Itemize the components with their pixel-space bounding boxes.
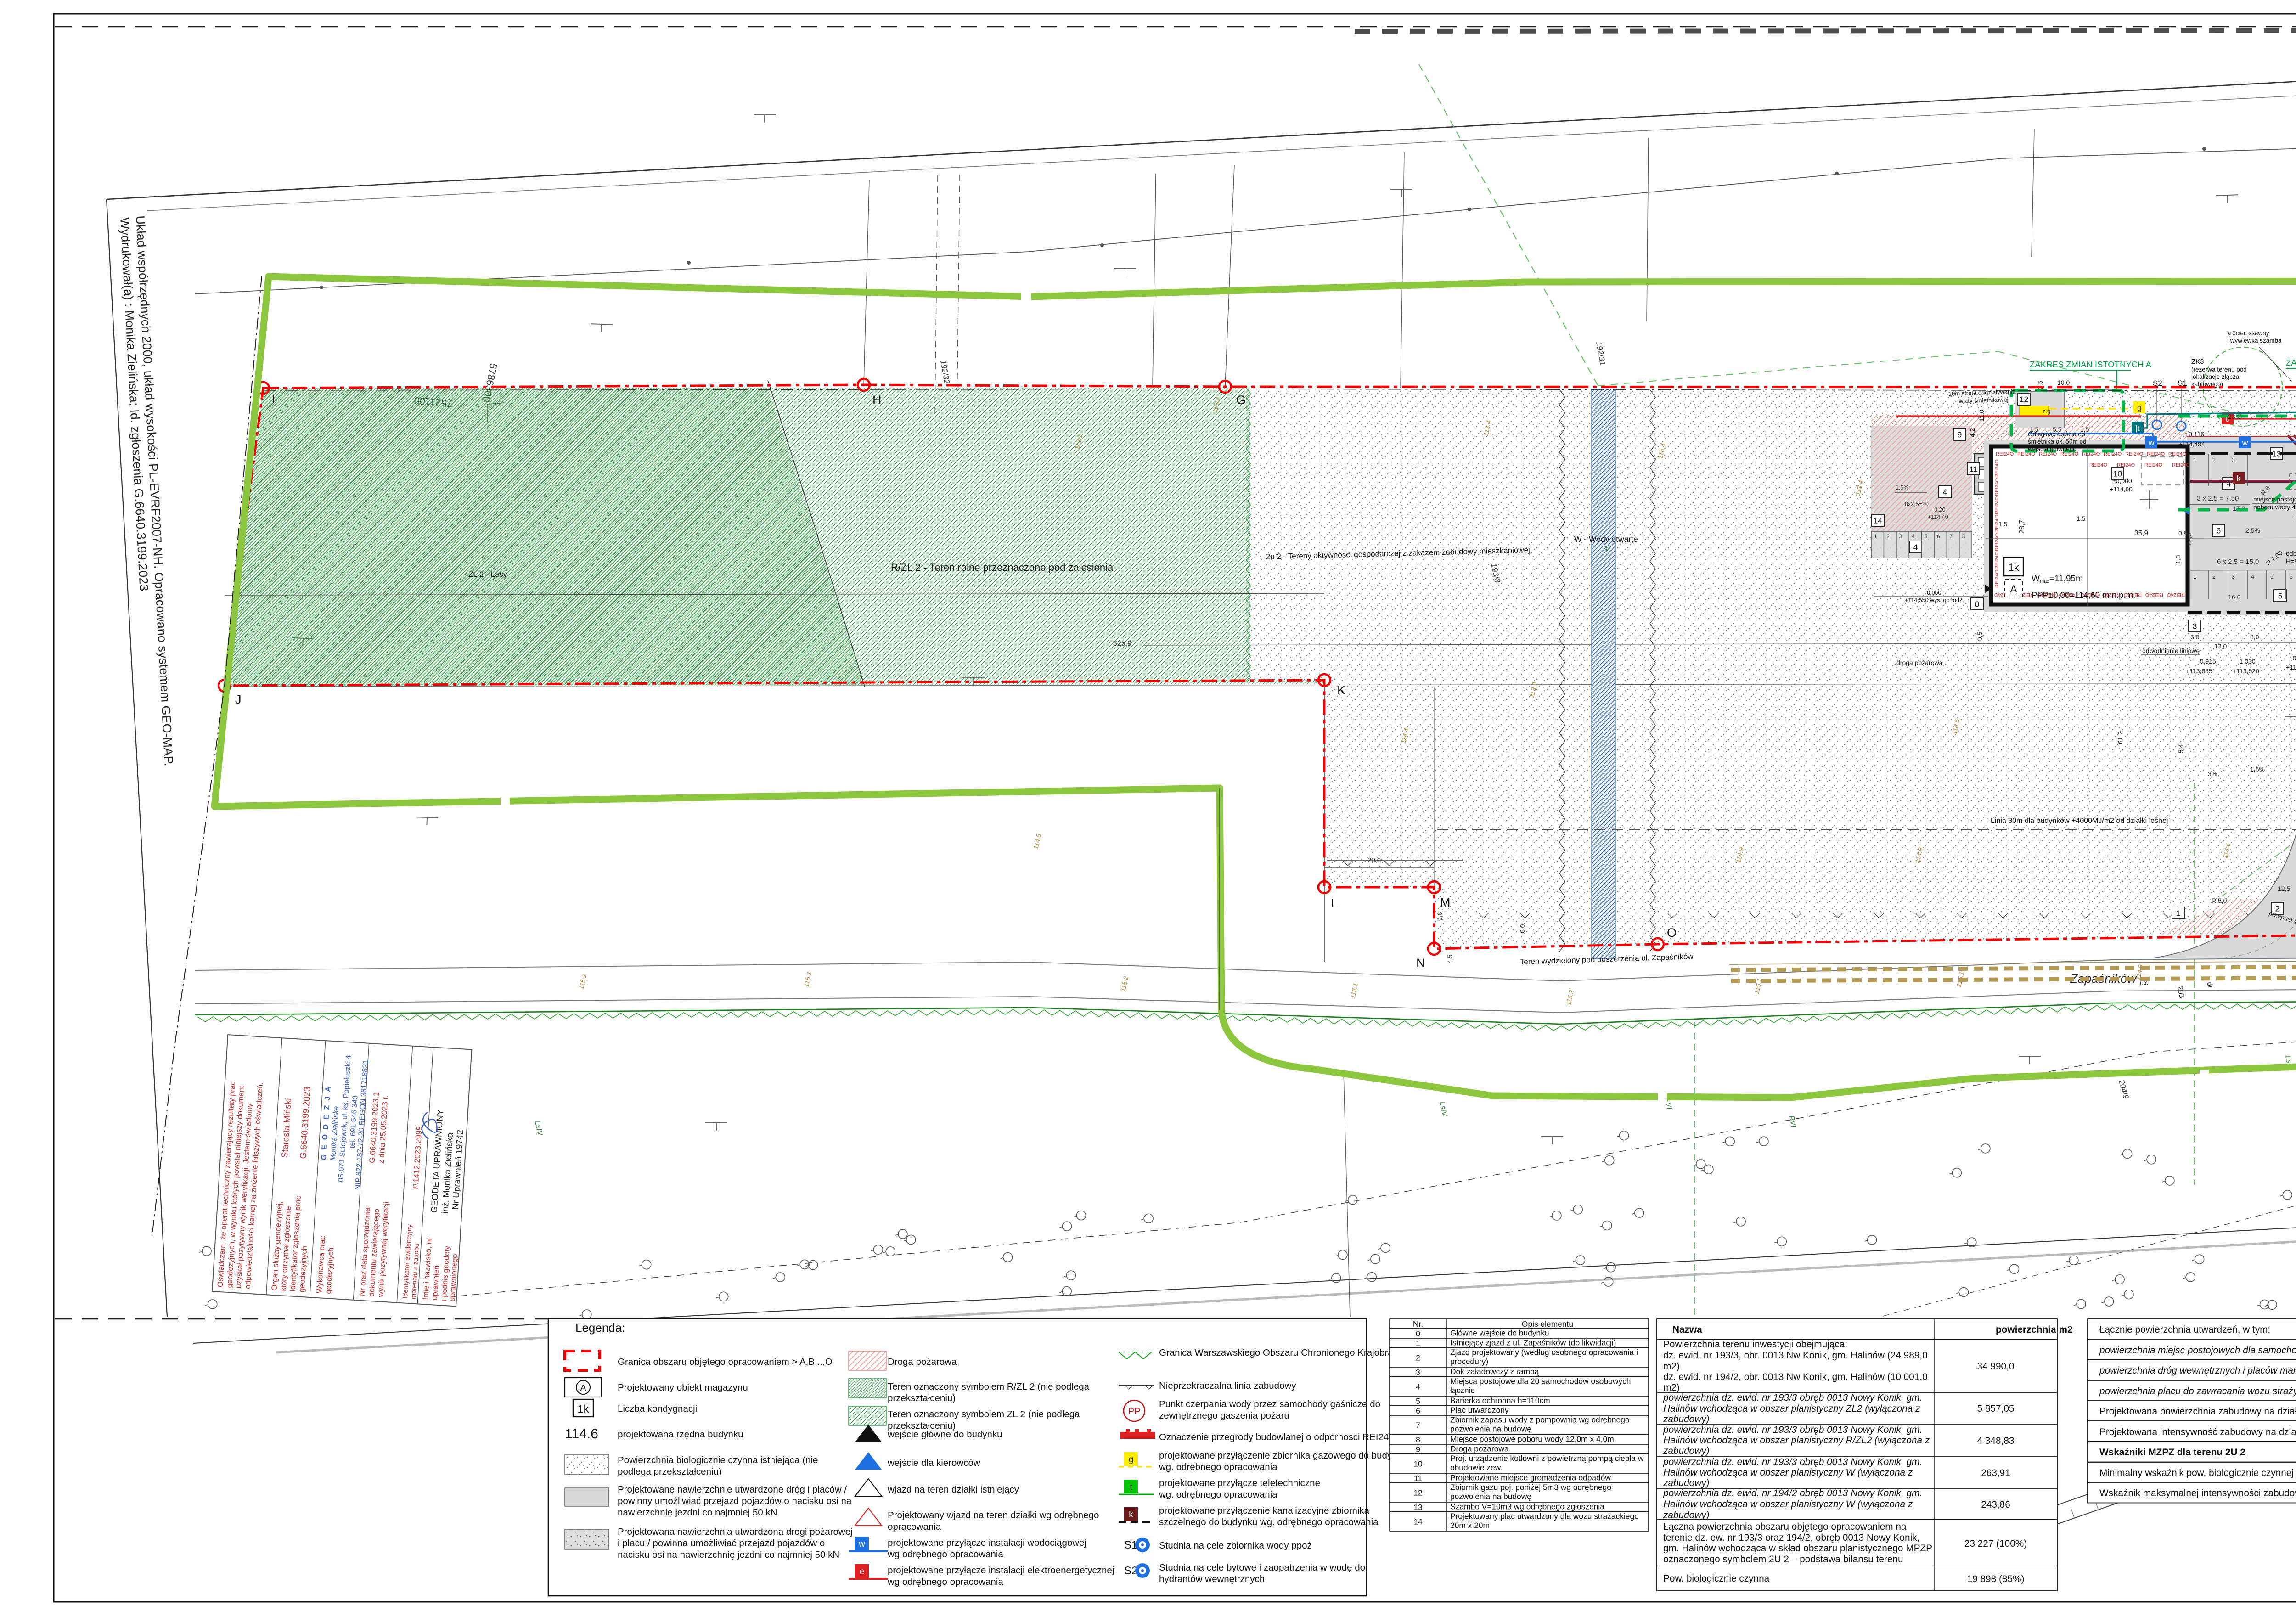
svg-text:+114,550 wys. gr. rodz.: +114,550 wys. gr. rodz. [1905, 597, 1964, 603]
svg-text:28,7: 28,7 [2018, 520, 2026, 534]
svg-text:powierzchnia placu do zawracan: powierzchnia placu do zawracania wozu st… [2099, 1386, 2296, 1397]
svg-text:zewnętrznego gaszenia pożaru: zewnętrznego gaszenia pożaru [1159, 1410, 1289, 1421]
svg-text:8: 8 [1416, 1435, 1420, 1444]
svg-text:obudowie zew.: obudowie zew. [1450, 1463, 1503, 1472]
svg-text:terenie dz. ew. nr 193/3 oraz: terenie dz. ew. nr 193/3 oraz 194/2, obr… [1663, 1532, 1919, 1543]
svg-text:Dok załadowczy z rampą: Dok załadowczy z rampą [1450, 1367, 1539, 1376]
svg-text:odbojnica liniowa: odbojnica liniowa [2286, 550, 2296, 557]
svg-text:wejście dla kierowców: wejście dla kierowców [887, 1458, 980, 1468]
svg-text:Legenda:: Legenda: [575, 1321, 625, 1335]
svg-text:1,3: 1,3 [2174, 555, 2182, 564]
svg-text:6,0: 6,0 [2190, 633, 2200, 641]
svg-text:Studnia na cele bytowe i zaopa: Studnia na cele bytowe i zaopatrzenia w … [1159, 1562, 1365, 1573]
svg-text:2: 2 [2212, 457, 2216, 463]
svg-text:m2): m2) [1663, 1382, 1680, 1393]
svg-text:+113,640: +113,640 [2286, 664, 2296, 671]
svg-text:w: w [858, 1539, 865, 1549]
svg-text:1,5: 1,5 [2030, 426, 2039, 433]
svg-text:Nazwa: Nazwa [1672, 1324, 1702, 1335]
svg-text:1: 1 [1416, 1339, 1420, 1348]
svg-text:20,0: 20,0 [1367, 856, 1381, 864]
svg-text:powierzchnia miejsc postojowyc: powierzchnia miejsc postojowych dla samo… [2099, 1345, 2296, 1356]
svg-text:Powierzchnia biologicznie czyn: Powierzchnia biologicznie czynna istniej… [618, 1455, 818, 1465]
svg-text:1: 1 [2193, 574, 2196, 580]
svg-text:ZK3: ZK3 [2191, 358, 2204, 366]
svg-text:Teren oznaczony symbolem R/ZL: Teren oznaczony symbolem R/ZL 2 (nie pod… [888, 1381, 1090, 1392]
svg-text:Szambo V=10m3 wg odrębnego zgł: Szambo V=10m3 wg odrębnego zgłoszenia [1450, 1502, 1604, 1511]
svg-text:w: w [2242, 438, 2249, 447]
svg-text:REI24O: REI24O [1994, 459, 2000, 478]
svg-text:ZAKRES ZMIAN ISTOTNYCH A: ZAKRES ZMIAN ISTOTNYCH A [2030, 360, 2152, 369]
svg-text:+114,60: +114,60 [2110, 485, 2133, 493]
svg-text:5: 5 [1416, 1397, 1420, 1406]
svg-text:14: 14 [1413, 1517, 1423, 1527]
svg-text:REI24O: REI24O [1994, 569, 2000, 588]
svg-text:7: 7 [1949, 533, 1953, 540]
svg-text:J: J [235, 693, 242, 706]
svg-text:Droga pożarowa: Droga pożarowa [888, 1357, 957, 1367]
svg-text:9: 9 [1416, 1445, 1420, 1454]
svg-text:droga pożarowa: droga pożarowa [1896, 659, 1943, 666]
svg-text:0: 0 [1416, 1329, 1420, 1338]
svg-text:miejsce postojowe: miejsce postojowe [2253, 496, 2296, 503]
svg-text:Barierka ochronna h=110cm: Barierka ochronna h=110cm [1450, 1396, 1550, 1405]
svg-text:7: 7 [1416, 1421, 1420, 1430]
svg-text:Oznaczenie przegrody budowlane: Oznaczenie przegrody budowlanej o odporn… [1159, 1432, 1394, 1442]
svg-text:6,0: 6,0 [1519, 924, 1526, 933]
svg-text:Miejsce postojowe poboru wody: Miejsce postojowe poboru wody 12,0m x 4,… [1450, 1435, 1614, 1444]
svg-text:A: A [2010, 583, 2017, 595]
svg-text:wg odrębnego opracowania: wg odrębnego opracowania [887, 1549, 1003, 1560]
svg-text:zabudowy): zabudowy) [1663, 1478, 1710, 1488]
svg-text:Teren oznaczony symbolem ZL 2: Teren oznaczony symbolem ZL 2 (nie podle… [888, 1409, 1080, 1419]
svg-text:projektowane przyłącze instala: projektowane przyłącze instalacji wodoci… [888, 1538, 1086, 1548]
svg-text:-0,050: -0,050 [1925, 590, 1941, 596]
svg-text:powierzchnia dz. ewid. nr 193/: powierzchnia dz. ewid. nr 193/3 obręb 00… [1663, 1392, 1922, 1403]
svg-text:11: 11 [1969, 464, 1977, 473]
svg-text:ZL 2 - Lasy: ZL 2 - Lasy [468, 570, 507, 579]
svg-text:16,0: 16,0 [2228, 593, 2240, 601]
svg-text:4: 4 [1912, 533, 1915, 540]
svg-text:+114,40: +114,40 [1928, 514, 1948, 520]
svg-text:Projektowane nawierzchnie utwa: Projektowane nawierzchnie utwardzone dró… [618, 1484, 847, 1495]
svg-text:Nieprzekraczalna linia zabudow: Nieprzekraczalna linia zabudowy [1159, 1380, 1296, 1391]
svg-text:Wskaźnik maksymalnej intensywn: Wskaźnik maksymalnej intensywności zabud… [2099, 1488, 2296, 1498]
svg-text:Pow. biologicznie czynna: Pow. biologicznie czynna [1663, 1573, 1770, 1584]
svg-text:1,5%: 1,5% [2250, 766, 2265, 773]
svg-text:O: O [1667, 926, 1677, 940]
svg-text:5: 5 [2270, 574, 2273, 580]
svg-text:Projektowany plac utwardzony d: Projektowany plac utwardzony dla wozu st… [1450, 1512, 1639, 1521]
svg-text:nacisku osi na nawierzchnię je: nacisku osi na nawierzchnię jezdni co na… [618, 1549, 839, 1560]
svg-text:k: k [1129, 1510, 1133, 1520]
svg-text:L: L [1331, 896, 1338, 910]
svg-text:5 857,05: 5 857,05 [1977, 1403, 2015, 1414]
svg-text:8x2,5=20: 8x2,5=20 [1905, 501, 1929, 507]
svg-text:1: 1 [1874, 533, 1877, 540]
svg-text:9,6: 9,6 [1436, 912, 1443, 921]
svg-text:oznaczonego symbolem 2U 2 – po: oznaczonego symbolem 2U 2 – podstawa bil… [1663, 1554, 1903, 1565]
svg-text:projektowane przyłącze teletec: projektowane przyłącze teletechniczne [1159, 1478, 1320, 1488]
svg-text:Linia 30m dla budynków +4000MJ: Linia 30m dla budynków +4000MJ/m2 od dzi… [1991, 817, 2168, 825]
svg-text:Minimalny wskaźnik pow. biolog: Minimalny wskaźnik pow. biologicznie czy… [2099, 1468, 2294, 1478]
svg-text:wjazd na teren działki istniej: wjazd na teren działki istniejący [887, 1484, 1019, 1495]
svg-text:Zbiornik gazu poj. poniżej 5m3: Zbiornik gazu poj. poniżej 5m3 wg odrębn… [1450, 1483, 1611, 1492]
svg-text:nawierzchnię jezdni co najmnie: nawierzchnię jezdni co najmniej 50 kN [618, 1507, 777, 1518]
svg-text:13: 13 [1413, 1503, 1422, 1512]
svg-text:W - Wody otwarte: W - Wody otwarte [1574, 535, 1638, 544]
svg-text:REI24O: REI24O [2167, 592, 2185, 597]
svg-text:g: g [2137, 403, 2142, 412]
svg-text:8: 8 [1962, 533, 1965, 540]
svg-text:114.6: 114.6 [565, 1426, 598, 1442]
svg-text:-0,20: -0,20 [1932, 507, 1946, 513]
svg-text:1: 1 [2193, 457, 2196, 463]
svg-text:19 898 (85%): 19 898 (85%) [1967, 1574, 2025, 1584]
svg-text:12: 12 [1413, 1488, 1422, 1498]
svg-text:Punkt czerpania wody przez sam: Punkt czerpania wody przez samochody gaś… [1159, 1399, 1380, 1409]
svg-text:REI24O: REI24O [1994, 478, 2000, 496]
svg-text:REI24O: REI24O [2125, 451, 2144, 457]
svg-text:H: H [872, 393, 882, 407]
svg-text:I: I [272, 392, 276, 406]
svg-text:powierzchnia dróg wewnętrznych: powierzchnia dróg wewnętrznych i placów … [2099, 1365, 2296, 1376]
svg-text:wejście główne do budynku: wejście główne do budynku [887, 1429, 1002, 1440]
svg-text:wg odrębnego opracowania: wg odrębnego opracowania [887, 1577, 1003, 1587]
svg-text:szczelnego do budynku wg. odrę: szczelnego do budynku wg. odrębnego opra… [1159, 1517, 1379, 1527]
svg-text:REI24O: REI24O [2145, 592, 2163, 597]
svg-text:g: g [1129, 1455, 1134, 1465]
svg-text:243,86: 243,86 [1981, 1499, 2010, 1510]
svg-text:12: 12 [2020, 394, 2028, 404]
svg-text:projektowane przyłączenie kana: projektowane przyłączenie kanalizacyjne … [1159, 1505, 1370, 1516]
svg-text:Wskaźniki MZPZ dla terenu 2U 2: Wskaźniki MZPZ dla terenu 2U 2 [2099, 1447, 2245, 1458]
svg-text:20m x 20m: 20m x 20m [1450, 1521, 1490, 1530]
svg-text:R/ZL 2 - Teren rolne przeznacz: R/ZL 2 - Teren rolne przeznaczone pod za… [891, 562, 1114, 573]
svg-text:N: N [1416, 956, 1425, 970]
svg-text:-0,960: -0,960 [2290, 654, 2296, 662]
svg-text:-0,915: -0,915 [2198, 658, 2216, 665]
svg-text:w: w [2148, 438, 2155, 447]
svg-text:projektowane przyłączenie zbio: projektowane przyłączenie zbiornika gazo… [1159, 1450, 1407, 1461]
svg-text:4: 4 [1943, 487, 1947, 496]
svg-text:REI24O: REI24O [2147, 451, 2165, 457]
svg-text:0,5: 0,5 [1976, 631, 1983, 641]
svg-text:REI24O: REI24O [2089, 462, 2108, 468]
svg-text:(rezerwa terenu pod: (rezerwa terenu pod [2191, 366, 2247, 373]
svg-text:R 5,0: R 5,0 [2212, 897, 2227, 904]
svg-text:odwodnienie liniowe: odwodnienie liniowe [2142, 647, 2200, 654]
svg-text:Halinów wchodząca w obszar pla: Halinów wchodząca w obszar planistyczny … [1663, 1403, 1920, 1414]
svg-text:zabudowy): zabudowy) [1663, 1510, 1710, 1521]
svg-text:K: K [1337, 683, 1345, 697]
svg-text:4: 4 [2251, 574, 2254, 580]
svg-text:dz. ewid. nr 193/3, obr. 0013: dz. ewid. nr 193/3, obr. 0013 Nw Konik, … [1663, 1350, 1928, 1361]
svg-text:325,9: 325,9 [1113, 640, 1131, 648]
svg-text:powierzchnia dz. ewid. nr 193/: powierzchnia dz. ewid. nr 193/3 obręb 00… [1663, 1425, 1922, 1435]
svg-text:1k: 1k [2008, 562, 2019, 573]
svg-text:Proj. urządzenie kotłowni z po: Proj. urządzenie kotłowni z powietrzną p… [1450, 1454, 1644, 1463]
svg-text:1k: 1k [577, 1403, 589, 1415]
svg-text:pozwolenia na budowę: pozwolenia na budowę [1450, 1425, 1531, 1434]
svg-text:14: 14 [1874, 516, 1883, 525]
svg-text:wg. odrębnego opracowania: wg. odrębnego opracowania [1159, 1489, 1277, 1500]
svg-text:PPP±0,00=114,60 m n.p.m.: PPP±0,00=114,60 m n.p.m. [2032, 590, 2135, 600]
svg-text:k: k [2237, 474, 2241, 483]
svg-text:|t: |t [2135, 424, 2139, 433]
svg-text:2: 2 [1886, 533, 1890, 540]
svg-text:Miejsca postojowe dla 20 samoc: Miejsca postojowe dla 20 samochodów osob… [1450, 1377, 1631, 1386]
svg-text:6: 6 [1937, 533, 1940, 540]
svg-text:23 227 (100%): 23 227 (100%) [1964, 1538, 2027, 1549]
svg-text:REI24O: REI24O [1994, 551, 2000, 569]
svg-text:wejścia głównego: wejścia głównego [2027, 445, 2077, 452]
svg-text:G: G [1236, 393, 1246, 407]
svg-text:1,5: 1,5 [2077, 515, 2086, 522]
svg-text:4,5: 4,5 [1446, 954, 1453, 963]
svg-text:Opis elementu: Opis elementu [1522, 1319, 1573, 1329]
svg-text:3: 3 [2232, 457, 2235, 463]
svg-text:procedury): procedury) [1450, 1357, 1488, 1366]
svg-text:5: 5 [1925, 533, 1928, 540]
svg-text:22,8: 22,8 [2185, 533, 2193, 546]
svg-text:śmietnika ok. 50m od: śmietnika ok. 50m od [2028, 438, 2087, 445]
svg-text:2: 2 [1416, 1353, 1420, 1363]
svg-text:podlega przekształceniu): podlega przekształceniu) [618, 1466, 722, 1477]
svg-text:Droga pożarowa: Droga pożarowa [1450, 1444, 1509, 1453]
svg-text:łącznie: łącznie [1450, 1386, 1475, 1395]
svg-text:6: 6 [1416, 1406, 1420, 1415]
svg-text:8,0: 8,0 [2250, 633, 2259, 641]
svg-text:REI24O: REI24O [1996, 451, 2014, 457]
svg-text:+113,685: +113,685 [2186, 667, 2212, 675]
svg-text:3%: 3% [2208, 770, 2217, 777]
svg-text:5,4: 5,4 [2177, 744, 2184, 753]
svg-text:Projektowana nawierzchnia utwa: Projektowana nawierzchnia utwardzona dro… [618, 1527, 853, 1537]
svg-text:9: 9 [1958, 430, 1962, 439]
svg-text:H=80cm: H=80cm [2286, 558, 2296, 565]
svg-text:Wmax=11,95m: Wmax=11,95m [2032, 574, 2083, 584]
svg-text:3: 3 [2193, 621, 2197, 631]
svg-text:zabudowy): zabudowy) [1663, 1414, 1710, 1425]
svg-text:A: A [580, 1383, 586, 1393]
svg-text:Zjazd projektowany (według oso: Zjazd projektowany (według osobnego opra… [1450, 1348, 1638, 1357]
svg-text:1,5%: 1,5% [1896, 484, 1909, 491]
svg-text:PP: PP [1128, 1407, 1141, 1417]
svg-text:11: 11 [1414, 1474, 1422, 1483]
svg-text:Halinów wchodząca w obszar pla: Halinów wchodząca w obszar planistyczny … [1663, 1435, 1930, 1446]
svg-text:Projektowany obiekt magazynu: Projektowany obiekt magazynu [618, 1382, 748, 1393]
svg-text:REI24O: REI24O [2144, 462, 2163, 468]
svg-text:t: t [1130, 1482, 1132, 1492]
svg-text:REI24O: REI24O [1994, 496, 2000, 514]
svg-text:Projektowane miejsce gromadzen: Projektowane miejsce gromadzenia odpadów [1450, 1473, 1611, 1482]
svg-text:powierzchnia dz. ewid. nr 194/: powierzchnia dz. ewid. nr 194/2 obręb 00… [1663, 1488, 1922, 1498]
svg-text:Powierzchnia terenu inwestycji: Powierzchnia terenu inwestycji obejmując… [1663, 1339, 1847, 1350]
svg-text:powinny umożliwiać przejazd po: powinny umożliwiać przejazd pojazdów o n… [618, 1496, 852, 1506]
svg-text:dz. ewid. nr 194/2, obr. 0013: dz. ewid. nr 194/2, obr. 0013 Nw Konik, … [1663, 1372, 1928, 1382]
svg-text:-1,030: -1,030 [2237, 658, 2256, 665]
svg-text:1,5: 1,5 [1998, 520, 2008, 528]
svg-text:3 x 2,5 = 7,50: 3 x 2,5 = 7,50 [2197, 495, 2239, 502]
svg-text:6 x 2,5 = 15,0: 6 x 2,5 = 15,0 [2217, 558, 2259, 566]
svg-text:1: 1 [2176, 908, 2181, 918]
svg-text:REI24O: REI24O [2168, 451, 2187, 457]
svg-text:2: 2 [2212, 574, 2216, 580]
svg-text:Główne wejście do budynku: Główne wejście do budynku [1450, 1329, 1549, 1338]
svg-text:i wywiewka szamba: i wywiewka szamba [2227, 337, 2282, 344]
svg-text:Projektowany wjazd na teren dz: Projektowany wjazd na teren działki wg o… [888, 1510, 1099, 1521]
svg-text:5: 5 [2278, 591, 2283, 600]
svg-text:e: e [860, 1567, 865, 1577]
svg-text:REI24O: REI24O [2172, 462, 2190, 468]
svg-text:gm. Halinów wchodząca w skład: gm. Halinów wchodząca w skład obszaru pl… [1663, 1543, 1932, 1554]
svg-text:+0,116: +0,116 [2185, 430, 2204, 438]
svg-text:kröciec ssawny: kröciec ssawny [2227, 330, 2269, 337]
svg-text:lokalizację złącza: lokalizację złącza [2191, 373, 2240, 380]
svg-text:+114,484: +114,484 [2178, 440, 2205, 448]
svg-text:23,2: 23,2 [2228, 413, 2240, 420]
svg-text:Studnia na cele zbiornika wody: Studnia na cele zbiornika wody ppoż [1159, 1540, 1312, 1551]
svg-text:Łączna powierzchnia obszaru ob: Łączna powierzchnia obszaru objętego opr… [1663, 1521, 1907, 1532]
svg-text:10,0: 10,0 [2057, 379, 2070, 386]
svg-text:10: 10 [2113, 469, 2122, 478]
svg-text:Liczba kondygnacji: Liczba kondygnacji [618, 1403, 697, 1414]
svg-text:10: 10 [1413, 1459, 1422, 1469]
svg-text:REI24O: REI24O [1994, 533, 2000, 551]
svg-text:35,9: 35,9 [2134, 529, 2148, 537]
svg-text:hydrantów wewnętrznych: hydrantów wewnętrznych [1159, 1574, 1265, 1584]
svg-text:Granica obszaru objętego oprac: Granica obszaru objętego opracowaniem > … [618, 1357, 833, 1367]
svg-text:Istniejący zjazd z ul. Zapaśni: Istniejący zjazd z ul. Zapaśników (do li… [1450, 1338, 1616, 1347]
svg-text:Zbiornik zapasu wody z pompown: Zbiornik zapasu wody z pompownią wg odrę… [1450, 1415, 1630, 1425]
svg-text:263,91: 263,91 [1981, 1468, 2010, 1478]
svg-text:Granica Warszawskiego Obszaru: Granica Warszawskiego Obszaru Chronioneg… [1159, 1347, 1403, 1358]
svg-text:3: 3 [1416, 1368, 1420, 1377]
svg-text:+113,520: +113,520 [2233, 667, 2259, 675]
svg-text:4 348,83: 4 348,83 [1977, 1436, 2015, 1446]
svg-text:6: 6 [2217, 526, 2221, 535]
svg-text:4: 4 [1416, 1382, 1420, 1391]
svg-text:M: M [1440, 896, 1451, 909]
svg-text:zabudowy): zabudowy) [1663, 1446, 1710, 1456]
svg-text:ZAKRES ZMIAN ISTOTNYCH B: ZAKRES ZMIAN ISTOTNYCH B [2286, 358, 2296, 367]
svg-text:Łącznie powierzchnia utwardzeń: Łącznie powierzchnia utwardzeń, w tym: [2099, 1324, 2270, 1335]
svg-text:1,5: 1,5 [2080, 426, 2089, 433]
svg-text:Nr.: Nr. [1413, 1319, 1423, 1329]
svg-text:12,5: 12,5 [2278, 885, 2290, 892]
svg-text:poboru wody 4,0mx12,0m: poboru wody 4,0mx12,0m [2253, 503, 2296, 511]
svg-text:Projektowana powierzchnia zabu: Projektowana powierzchnia zabudowy na dz… [2099, 1406, 2296, 1417]
svg-text:Halinów wchodząca w obszar pla: Halinów wchodząca w obszar planistyczny … [1663, 1499, 1913, 1510]
svg-text:11,0: 11,0 [1978, 410, 1985, 422]
svg-text:Projektowana intensywność zabu: Projektowana intensywność zabudowy na dz… [2099, 1427, 2296, 1437]
svg-text:Halinów wchodząca w obszar pla: Halinów wchodząca w obszar planistyczny … [1663, 1467, 1913, 1478]
svg-text:34 990,0: 34 990,0 [1977, 1361, 2015, 1372]
svg-text:opracowania: opracowania [888, 1521, 941, 1532]
svg-text:projektowane przyłącze instala: projektowane przyłącze instalacji elektr… [888, 1565, 1114, 1576]
svg-text:Plac utwardzony: Plac utwardzony [1450, 1406, 1509, 1415]
svg-text:m2): m2) [1663, 1361, 1680, 1372]
svg-text:12,0: 12,0 [2214, 642, 2227, 650]
svg-text:powierzchnia m2: powierzchnia m2 [1996, 1324, 2073, 1335]
svg-text:2,5%: 2,5% [2245, 527, 2260, 534]
svg-text:6: 6 [2290, 574, 2293, 580]
svg-text:4,2: 4,2 [1969, 428, 1976, 437]
svg-text:61,2: 61,2 [2116, 732, 2124, 744]
svg-text:przekształceniu): przekształceniu) [888, 1393, 956, 1403]
svg-text:wg. odrebnego opracowania: wg. odrebnego opracowania [1159, 1462, 1277, 1472]
svg-text:+114,057: +114,057 [2294, 513, 2296, 520]
svg-text:i placu / powinna umożliwiać p: i placu / powinna umożliwiać przejazd po… [618, 1538, 825, 1549]
svg-text:0: 0 [1975, 599, 1980, 608]
svg-text:pozwolenia na budowę: pozwolenia na budowę [1450, 1492, 1531, 1501]
svg-text:3: 3 [2232, 574, 2235, 580]
svg-text:projektowana rzędna budynku: projektowana rzędna budynku [618, 1429, 743, 1440]
svg-text:5,5: 5,5 [2053, 426, 2062, 433]
svg-text:powierzchnia dz. ewid. nr 193/: powierzchnia dz. ewid. nr 193/3 obręb 00… [1663, 1457, 1922, 1467]
svg-text:3: 3 [1899, 533, 1902, 540]
svg-text:4: 4 [1913, 542, 1918, 552]
